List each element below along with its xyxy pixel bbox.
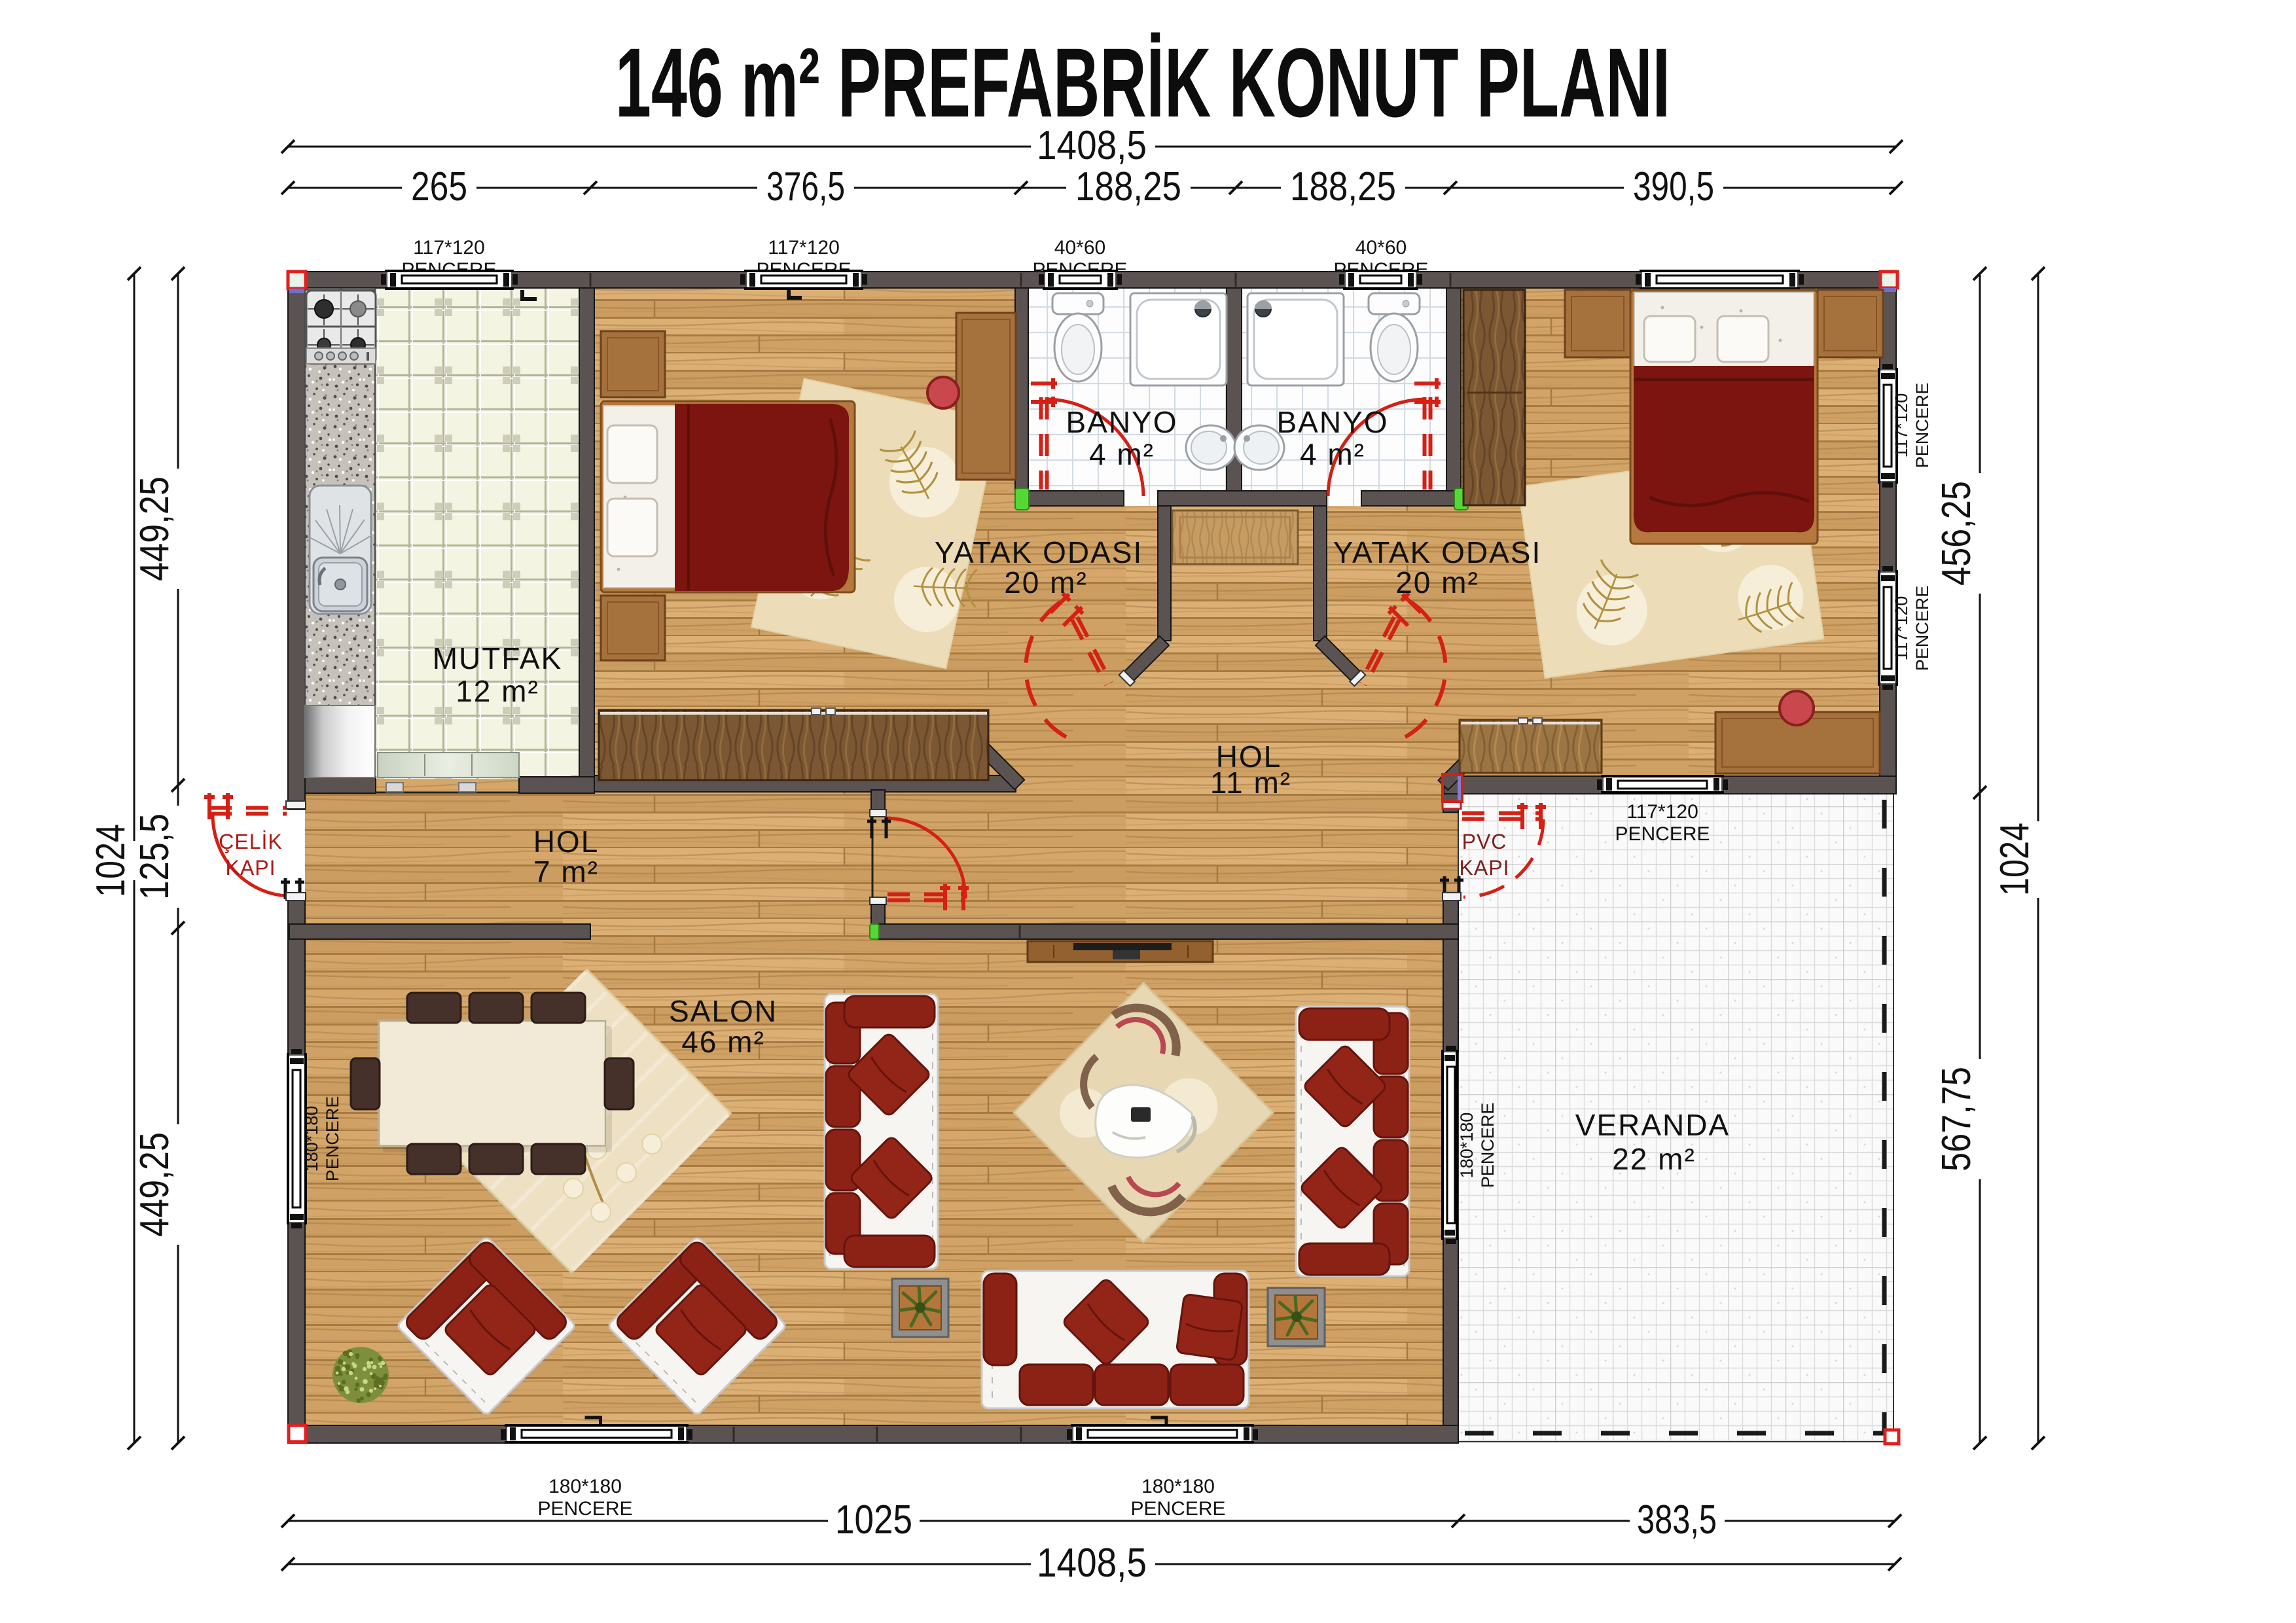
svg-text:265: 265 <box>411 164 467 209</box>
svg-text:180*180: 180*180 <box>302 1106 321 1172</box>
svg-text:PENCERE: PENCERE <box>1912 586 1932 671</box>
svg-text:20 m²: 20 m² <box>1004 565 1088 599</box>
svg-text:567,75: 567,75 <box>1934 1067 1979 1171</box>
svg-text:SALON: SALON <box>669 994 778 1028</box>
svg-text:40*60: 40*60 <box>1355 237 1407 259</box>
svg-text:BANYO: BANYO <box>1066 405 1177 439</box>
svg-text:PENCERE: PENCERE <box>537 1498 632 1520</box>
svg-text:PENCERE: PENCERE <box>1478 1103 1498 1188</box>
svg-text:180*180: 180*180 <box>1141 1476 1215 1497</box>
svg-text:12 m²: 12 m² <box>456 674 539 708</box>
svg-text:KAPI: KAPI <box>1460 856 1510 880</box>
svg-text:BANYO: BANYO <box>1276 405 1388 439</box>
svg-text:HOL: HOL <box>533 825 600 859</box>
svg-text:117*120: 117*120 <box>1892 393 1911 458</box>
svg-text:383,5: 383,5 <box>1637 1497 1717 1543</box>
svg-text:1024: 1024 <box>88 824 134 897</box>
svg-text:117*120: 117*120 <box>1626 801 1698 823</box>
svg-text:MUTFAK: MUTFAK <box>433 641 563 675</box>
svg-text:46 m²: 46 m² <box>681 1025 765 1059</box>
svg-text:PENCERE: PENCERE <box>1615 823 1710 845</box>
svg-text:449,25: 449,25 <box>132 1132 177 1237</box>
svg-text:117*120: 117*120 <box>1892 596 1911 661</box>
svg-text:KAPI: KAPI <box>226 856 276 880</box>
svg-text:ÇELİK: ÇELİK <box>219 830 282 853</box>
svg-text:146 m² PREFABRİK KONUT PLANI: 146 m² PREFABRİK KONUT PLANI <box>615 27 1670 137</box>
svg-text:PVC: PVC <box>1462 830 1507 853</box>
svg-text:1408,5: 1408,5 <box>1037 1541 1147 1586</box>
svg-text:188,25: 188,25 <box>1075 164 1181 209</box>
svg-text:390,5: 390,5 <box>1633 164 1714 209</box>
svg-text:22 m²: 22 m² <box>1612 1142 1696 1176</box>
svg-text:40*60: 40*60 <box>1054 237 1105 259</box>
svg-text:PENCERE: PENCERE <box>323 1096 342 1182</box>
svg-text:456,25: 456,25 <box>1934 481 1979 586</box>
svg-text:180*180: 180*180 <box>1457 1113 1477 1179</box>
svg-text:YATAK ODASI: YATAK ODASI <box>1333 535 1542 569</box>
svg-text:YATAK ODASI: YATAK ODASI <box>935 535 1143 569</box>
svg-text:449,25: 449,25 <box>132 476 177 581</box>
svg-text:188,25: 188,25 <box>1290 164 1396 209</box>
svg-text:180*180: 180*180 <box>548 1476 622 1497</box>
svg-text:1408,5: 1408,5 <box>1037 123 1147 168</box>
svg-text:1025: 1025 <box>835 1497 912 1543</box>
svg-text:7 m²: 7 m² <box>533 855 599 889</box>
svg-text:4 m²: 4 m² <box>1300 437 1365 471</box>
svg-text:376,5: 376,5 <box>766 164 845 209</box>
svg-text:11 m²: 11 m² <box>1210 766 1291 800</box>
svg-text:PENCERE: PENCERE <box>1130 1498 1225 1520</box>
svg-text:1024: 1024 <box>1992 823 2037 896</box>
svg-text:PENCERE: PENCERE <box>1912 383 1932 469</box>
svg-text:VERANDA: VERANDA <box>1575 1108 1730 1142</box>
svg-text:20 m²: 20 m² <box>1395 565 1479 599</box>
svg-text:4 m²: 4 m² <box>1089 437 1155 471</box>
svg-text:125,5: 125,5 <box>132 813 177 900</box>
svg-text:117*120: 117*120 <box>768 237 840 259</box>
svg-text:117*120: 117*120 <box>413 237 485 259</box>
